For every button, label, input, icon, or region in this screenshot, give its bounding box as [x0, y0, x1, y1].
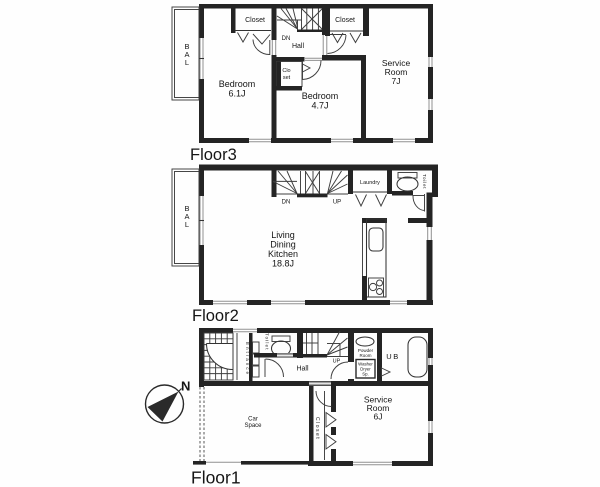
- svg-text:Space: Space: [244, 423, 262, 429]
- svg-text:Floor1: Floor1: [191, 468, 241, 487]
- svg-text:Closet: Closet: [335, 17, 355, 24]
- svg-text:Floor3: Floor3: [190, 146, 237, 164]
- svg-text:DN: DN: [282, 36, 291, 42]
- svg-text:UP: UP: [333, 200, 341, 206]
- svg-text:Living: Living: [271, 230, 295, 240]
- svg-text:Hall: Hall: [292, 43, 305, 50]
- svg-text:6J: 6J: [374, 412, 383, 422]
- svg-text:Toilet: Toilet: [422, 174, 427, 189]
- svg-text:Hall: Hall: [296, 366, 309, 373]
- svg-text:Clo: Clo: [282, 68, 290, 74]
- svg-text:Toilet: Toilet: [265, 333, 270, 351]
- svg-text:Floor2: Floor2: [192, 307, 239, 325]
- svg-text:L: L: [185, 220, 189, 229]
- svg-text:set: set: [283, 75, 291, 81]
- svg-text:Bedroom: Bedroom: [302, 91, 339, 101]
- svg-text:Dining: Dining: [270, 240, 296, 250]
- svg-text:6.1J: 6.1J: [228, 89, 245, 99]
- svg-text:Laundry: Laundry: [360, 180, 380, 186]
- svg-text:L: L: [185, 58, 189, 67]
- svg-text:Closet: Closet: [245, 17, 265, 24]
- svg-text:UB: UB: [386, 352, 399, 361]
- svg-text:Sp.: Sp.: [362, 372, 368, 377]
- svg-text:Kitchen: Kitchen: [268, 249, 298, 259]
- svg-text:DN: DN: [282, 200, 291, 206]
- svg-text:UP: UP: [333, 359, 341, 365]
- svg-text:N: N: [181, 379, 190, 394]
- svg-text:18.8J: 18.8J: [272, 259, 294, 269]
- svg-text:Closet: Closet: [314, 417, 320, 440]
- svg-text:7J: 7J: [392, 76, 401, 86]
- svg-text:Bedroom: Bedroom: [219, 79, 256, 89]
- svg-text:Car: Car: [248, 417, 258, 423]
- svg-text:Room: Room: [359, 353, 371, 358]
- svg-text:4.7J: 4.7J: [311, 101, 328, 111]
